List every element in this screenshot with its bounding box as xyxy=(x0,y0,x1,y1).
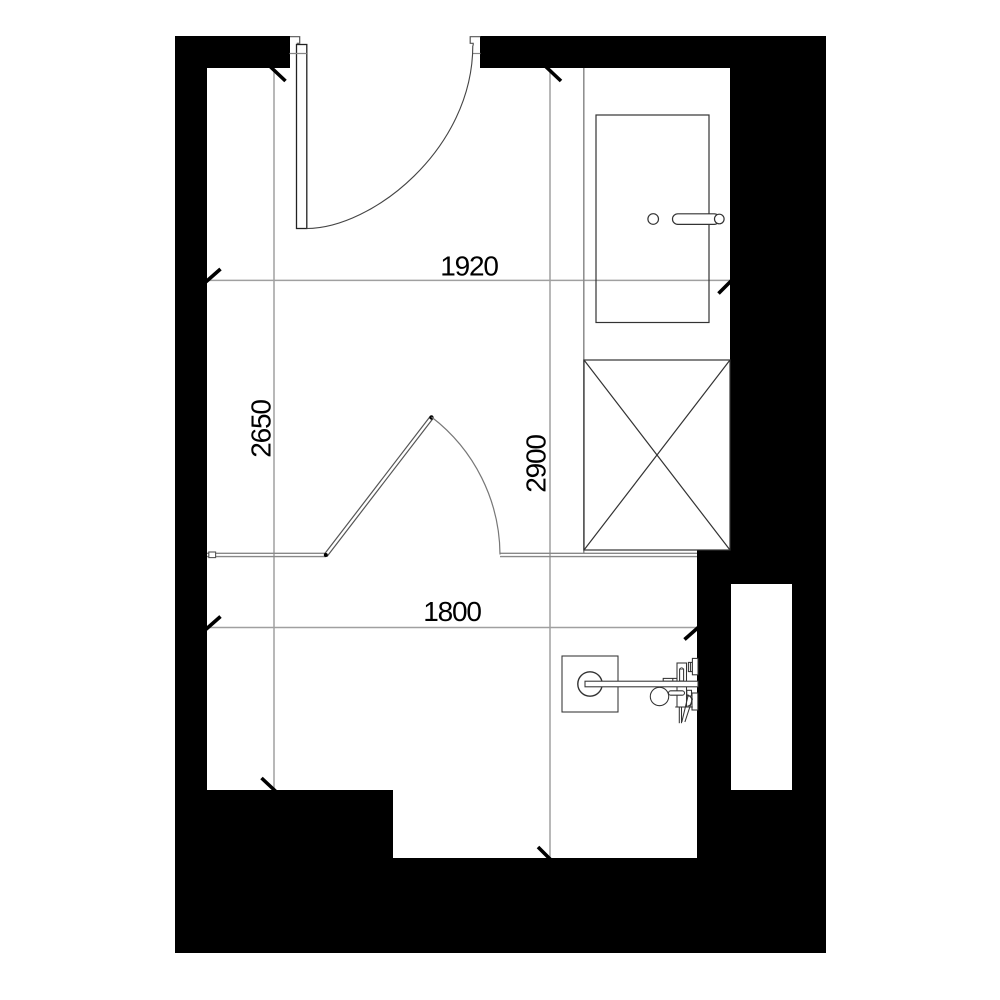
svg-text:2650: 2650 xyxy=(246,400,277,458)
svg-text:1920: 1920 xyxy=(440,251,498,282)
svg-text:2900: 2900 xyxy=(521,435,552,493)
svg-text:1800: 1800 xyxy=(423,596,481,627)
